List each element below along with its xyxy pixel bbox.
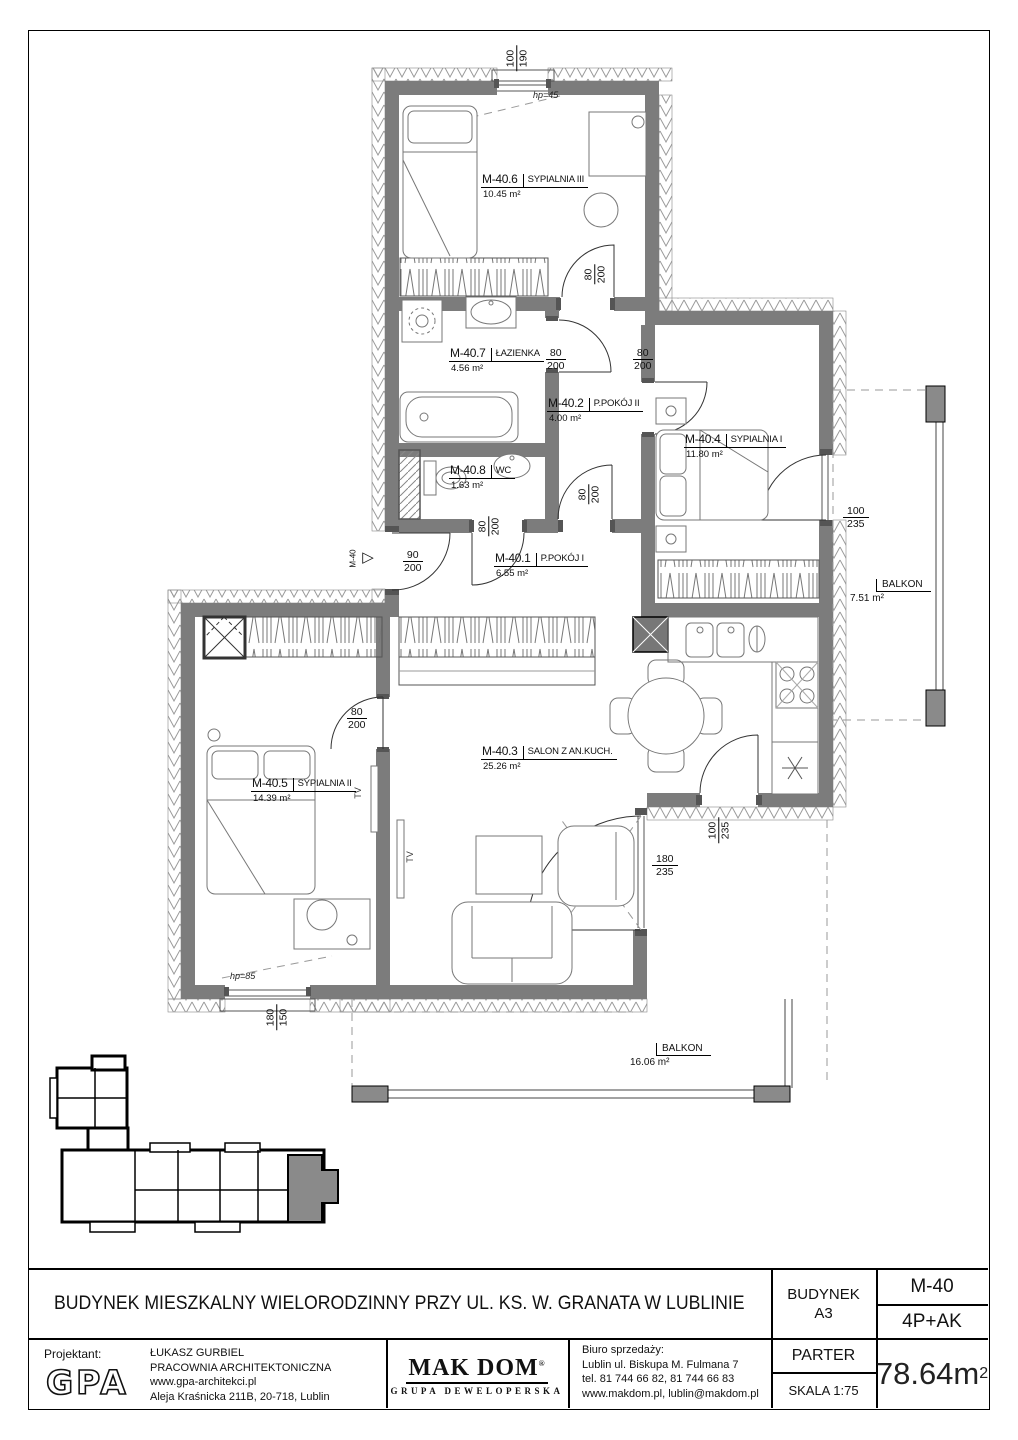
entrance-arrow-icon: ▷ — [362, 551, 374, 565]
dim-window-top: 100190 — [504, 46, 529, 72]
entrance-marker: M-40 ▷ — [344, 551, 374, 565]
dim-door-sypialnia3: 80200 — [582, 262, 607, 288]
room-label-wc: M-40.8WC 1.63 m² — [449, 461, 515, 491]
lamp-icon-2 — [347, 935, 357, 945]
sink-icon-bathroom — [466, 297, 516, 328]
dim-door-sypialnia2: 80200 — [344, 706, 370, 731]
dim-door-wc: 80200 — [476, 514, 501, 540]
sales-web: www.makdom.pl, lublin@makdom.pl — [582, 1387, 759, 1402]
dim-door-ppokoj2: 80200 — [576, 482, 601, 508]
area-cell: 78.64m2 — [876, 1339, 988, 1408]
sales-address: Lublin ul. Biskupa M. Fulmana 7 — [582, 1358, 759, 1373]
svg-text:GPA: GPA — [46, 1363, 129, 1402]
armchair-icon — [558, 826, 634, 906]
entrance-label: M-40 — [349, 549, 358, 567]
kitchen-sink-icon — [686, 623, 744, 657]
dim-window-bottom: 180150 — [264, 1005, 289, 1031]
bed-icon-sypialnia2 — [207, 729, 315, 894]
dim-door-lazienka: 80200 — [543, 347, 569, 372]
hood-icon — [749, 626, 765, 652]
washer-icon — [402, 300, 442, 342]
designer-address: Aleja Kraśnicka 211B, 20-718, Lublin — [150, 1390, 331, 1405]
unit-type-cell: 4P+AK — [876, 1305, 988, 1338]
room-label-ppokoj1: M-40.1P.POKÓJ I 6.55 m² — [494, 549, 588, 579]
bed-icon-sypialnia3 — [403, 106, 477, 258]
dim-balcony-door-east: 100235 — [843, 505, 869, 530]
chair-icon-2 — [307, 900, 337, 930]
designer-studio: PRACOWNIA ARCHITEKTONICZNA — [150, 1361, 331, 1376]
sales-phone: tel. 81 744 66 82, 81 744 66 83 — [582, 1372, 759, 1387]
room-label-sypialnia1: M-40.4SYPIALNIA I 11.80 m² — [684, 430, 786, 460]
dim-salon-door: 180235 — [652, 853, 678, 878]
floor-cell: PARTER — [771, 1339, 876, 1372]
titleblock-divider — [568, 1338, 570, 1408]
makdom-logo: MAK DOM® GRUPA DEWELOPERSKA — [386, 1339, 568, 1408]
coffee-table-icon — [476, 836, 542, 894]
sofa-icon — [452, 902, 572, 984]
unit-id-cell: M-40 — [876, 1269, 988, 1304]
designer-info: ŁUKASZ GURBIEL PRACOWNIA ARCHITEKTONICZN… — [150, 1346, 331, 1404]
tv-label-bedroom: TV — [353, 787, 363, 799]
designer-site: www.gpa-architekci.pl — [150, 1375, 331, 1390]
lamp-icon — [632, 116, 644, 128]
hp-label-top: hp=45 — [533, 90, 558, 100]
balcony-label-south: BALKON 16.06 m² — [630, 1038, 711, 1068]
bathtub-icon — [400, 392, 518, 442]
bed-icon-sypialnia1 — [656, 398, 768, 552]
floor-plan-svg: GPA — [0, 0, 1018, 1440]
tv-label-salon: TV — [405, 851, 415, 863]
drawing-sheet: GPA M-40.6SYPIALNIA III 10.45 m² M-40.7Ł… — [0, 0, 1018, 1440]
room-label-ppokoj2: M-40.2P.POKÓJ II 4.00 m² — [547, 394, 643, 424]
room-label-sypialnia3: M-40.6SYPIALNIA III 10.45 m² — [481, 170, 588, 200]
room-label-sypialnia2: M-40.5SYPIALNIA II 14.39 m² — [251, 774, 356, 804]
tv-icon-bedroom — [371, 766, 378, 832]
chair-icon — [584, 193, 618, 227]
designer-label: Projektant: — [44, 1347, 101, 1361]
hp-label-bottom: hp=85 — [230, 971, 255, 981]
stove-icon — [776, 662, 818, 708]
furniture — [207, 106, 818, 984]
sales-office-info: Biuro sprzedaży: Lublin ul. Biskupa M. F… — [582, 1343, 759, 1401]
building-cell: BUDYNEK A3 — [771, 1269, 876, 1338]
dim-door-entrance: 90200 — [400, 549, 426, 574]
designer-name: ŁUKASZ GURBIEL — [150, 1346, 331, 1361]
dim-door-sypialnia1: 80200 — [630, 347, 656, 372]
room-label-lazienka: M-40.7ŁAZIENKA 4.56 m² — [449, 344, 544, 374]
fridge-icon — [772, 742, 818, 794]
dim-kitchen-door: 100235 — [706, 818, 731, 844]
tv-icon-salon — [397, 820, 404, 898]
highlighted-unit — [288, 1155, 338, 1222]
dining-table-icon — [610, 660, 722, 772]
scale-cell: SKALA 1:75 — [771, 1373, 876, 1408]
balcony-label-east: BALKON 7.51 m² — [850, 574, 931, 604]
room-label-salon: M-40.3SALON Z AN.KUCH. 25.26 m² — [481, 742, 617, 772]
project-title: BUDYNEK MIESZKALNY WIELORODZINNY PRZY UL… — [28, 1269, 771, 1338]
sales-label: Biuro sprzedaży: — [582, 1343, 759, 1358]
location-map — [50, 1056, 338, 1232]
gpa-logo: GPA — [46, 1363, 129, 1402]
